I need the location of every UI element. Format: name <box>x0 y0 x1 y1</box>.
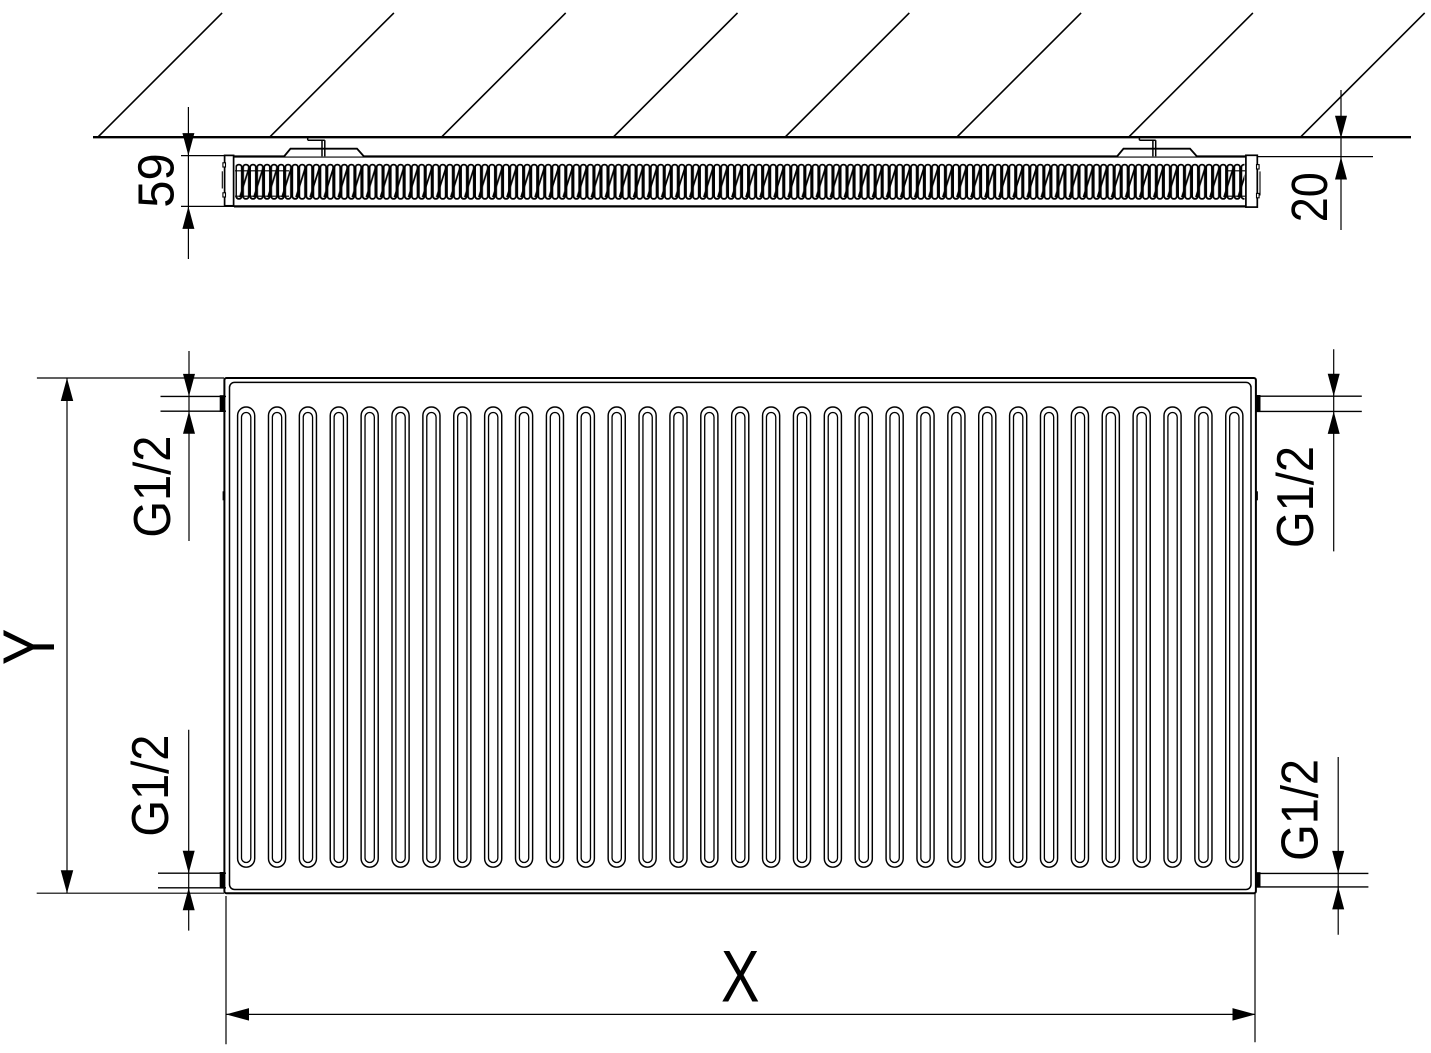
svg-text:59: 59 <box>127 153 184 208</box>
svg-text:G1/2: G1/2 <box>123 436 181 538</box>
svg-text:X: X <box>721 936 760 1017</box>
svg-text:G1/2: G1/2 <box>1266 446 1324 548</box>
svg-text:20: 20 <box>1281 172 1338 222</box>
svg-text:G1/2: G1/2 <box>1271 759 1329 861</box>
svg-text:Y: Y <box>0 629 70 666</box>
svg-text:G1/2: G1/2 <box>121 735 179 837</box>
